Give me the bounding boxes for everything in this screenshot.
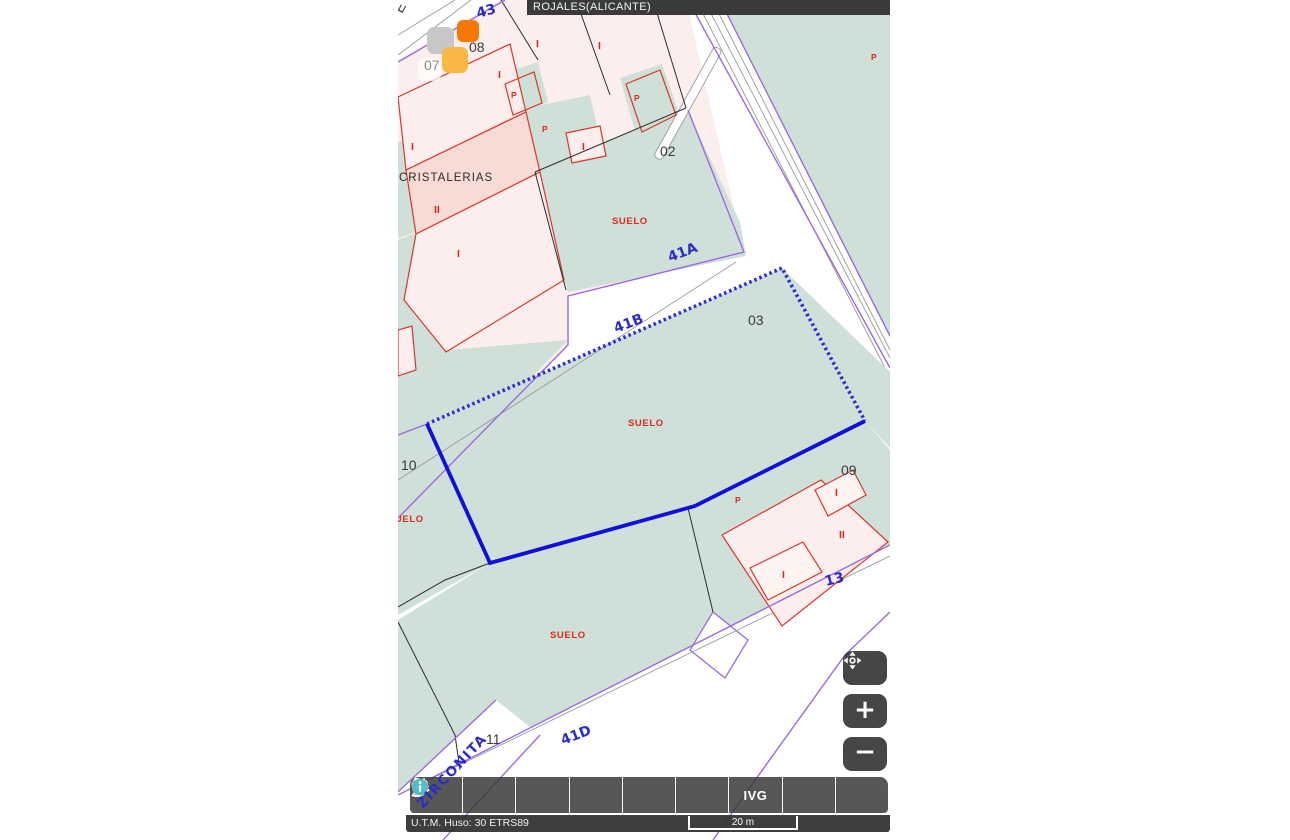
suelo-label-02: SUELO xyxy=(612,216,648,227)
floor-label-ii: II xyxy=(839,529,845,541)
floor-label-i: I xyxy=(498,69,501,81)
map-title-bar: ROJALES(ALICANTE) xyxy=(527,0,890,15)
pointer-info-button[interactable]: P xyxy=(675,777,728,813)
zoom-in-label: + xyxy=(854,695,876,725)
p-mark: P xyxy=(735,495,741,505)
floor-label-ii: II xyxy=(434,204,440,216)
utm-reference: U.T.M. Huso: 30 ETRS89 xyxy=(411,815,529,832)
marker-amber[interactable] xyxy=(442,47,468,73)
p-mark: P xyxy=(634,93,640,103)
cartography-3d-button[interactable] xyxy=(782,777,835,813)
municipality-title: ROJALES(ALICANTE) xyxy=(533,1,651,13)
map-toolbar: P IVG xyxy=(410,777,888,813)
layers-button[interactable] xyxy=(515,777,568,813)
floor-label-i: I xyxy=(411,141,414,153)
print-button[interactable] xyxy=(622,777,675,813)
parcel-number-09: 09 xyxy=(841,462,857,478)
ivg-label: IVG xyxy=(743,788,767,803)
information-button[interactable] xyxy=(835,777,888,813)
parcel-number-02: 02 xyxy=(660,143,676,159)
p-mark: P xyxy=(511,90,517,100)
parcel-number-07: 07 xyxy=(424,57,440,73)
floor-label-i: I xyxy=(835,487,838,499)
floor-label-i: I xyxy=(457,248,460,260)
map-canvas[interactable]: E 43 41A 41B 41D 13 02 03 07 08 09 10 11… xyxy=(398,0,890,840)
parcel-number-03: 03 xyxy=(748,312,764,328)
p-mark: P xyxy=(871,52,877,62)
place-label-cristalerias: CRISTALERIAS xyxy=(399,172,493,184)
zoom-in-button[interactable]: + xyxy=(843,694,887,728)
pan-arrows-icon xyxy=(843,651,862,670)
status-bar: U.T.M. Huso: 30 ETRS89 20 m xyxy=(406,815,890,832)
parcel-number-10: 10 xyxy=(401,457,417,473)
p-mark: P xyxy=(542,124,548,134)
floor-label-i: I xyxy=(582,141,585,153)
scale-label: 20 m xyxy=(732,817,754,828)
suelo-label-11: SUELO xyxy=(550,630,586,641)
floor-label-i: I xyxy=(782,569,785,581)
search-button[interactable] xyxy=(462,777,515,813)
measure-button[interactable] xyxy=(569,777,622,813)
suelo-label-10: SUELO xyxy=(398,514,424,525)
page: E 43 41A 41B 41D 13 02 03 07 08 09 10 11… xyxy=(0,0,1290,840)
zoom-out-label: − xyxy=(854,737,876,767)
zoom-out-button[interactable]: − xyxy=(843,737,887,771)
floor-label-i: I xyxy=(598,40,601,52)
floor-label-i: I xyxy=(536,38,539,50)
street-label-e: E xyxy=(398,0,409,15)
scale-bar: 20 m xyxy=(688,816,798,830)
cadastral-map-svg[interactable]: E 43 41A 41B 41D 13 02 03 07 08 09 10 11… xyxy=(398,0,890,840)
pan-button[interactable] xyxy=(843,651,887,685)
parcel-number-08: 08 xyxy=(469,39,485,55)
ivg-button[interactable]: IVG xyxy=(728,777,781,813)
suelo-label-03: SUELO xyxy=(628,418,664,429)
